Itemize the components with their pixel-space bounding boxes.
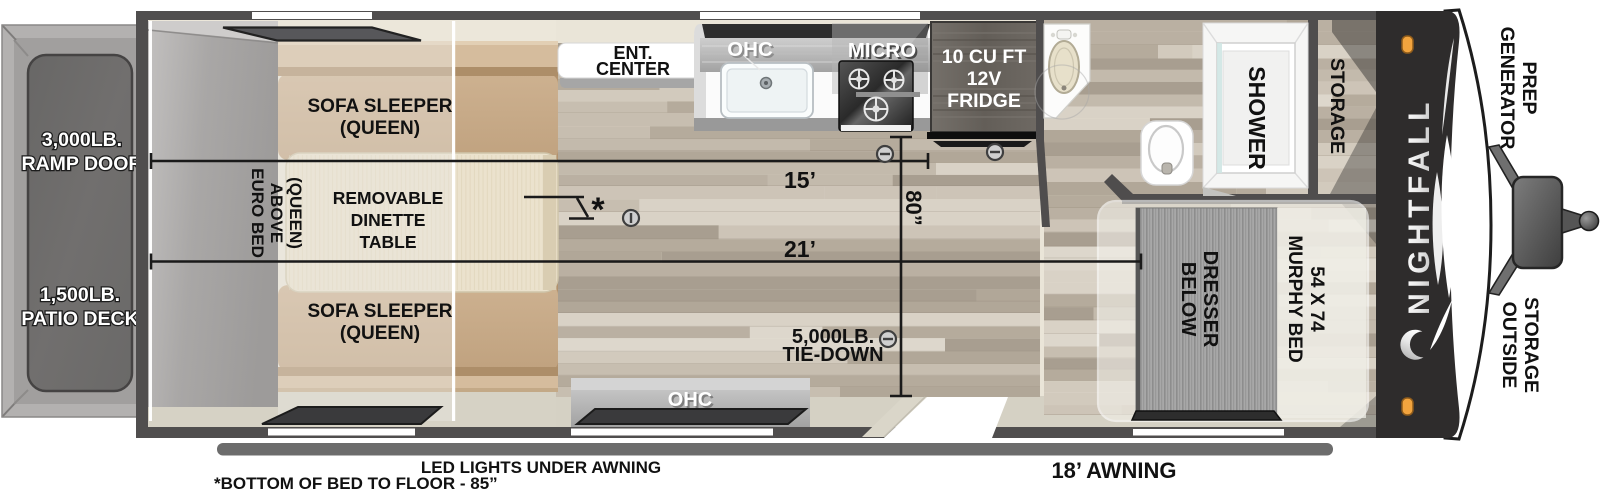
svg-text:RAMP DOOR: RAMP DOOR	[22, 153, 143, 175]
svg-text:21’: 21’	[784, 236, 816, 262]
svg-text:DINETTE: DINETTE	[351, 210, 426, 230]
svg-text:MURPHY BED: MURPHY BED	[1284, 235, 1305, 362]
svg-text:54 X 74: 54 X 74	[1306, 266, 1327, 332]
svg-text:NIGHTFALL: NIGHTFALL	[1403, 97, 1436, 315]
svg-text:MICRO: MICRO	[848, 39, 916, 62]
svg-text:TABLE: TABLE	[359, 232, 416, 252]
svg-text:TIE-DOWN: TIE-DOWN	[782, 344, 883, 366]
svg-text:OUTSIDE: OUTSIDE	[1498, 302, 1520, 389]
svg-text:1,500LB.: 1,500LB.	[40, 284, 120, 306]
svg-text:10 CU FT: 10 CU FT	[942, 46, 1027, 68]
svg-text:12V: 12V	[967, 68, 1002, 90]
svg-text:*BOTTOM OF BED TO FLOOR - 85”: *BOTTOM OF BED TO FLOOR - 85”	[214, 474, 498, 492]
svg-text:SOFA SLEEPER: SOFA SLEEPER	[308, 301, 453, 322]
svg-text:OHC: OHC	[727, 38, 773, 61]
svg-text:ABOVE: ABOVE	[267, 183, 286, 243]
svg-text:BELOW: BELOW	[1177, 262, 1199, 337]
svg-text:(QUEEN): (QUEEN)	[340, 323, 420, 344]
svg-text:CENTER: CENTER	[596, 59, 670, 79]
svg-text:*: *	[591, 191, 605, 229]
svg-text:PATIO DECK: PATIO DECK	[21, 308, 138, 330]
svg-text:EURO BED: EURO BED	[248, 168, 267, 258]
svg-text:PREP: PREP	[1518, 61, 1540, 114]
svg-text:3,000LB.: 3,000LB.	[42, 129, 122, 151]
svg-text:STORAGE: STORAGE	[1520, 297, 1542, 393]
svg-text:80”: 80”	[901, 190, 926, 225]
svg-text:SOFA SLEEPER: SOFA SLEEPER	[308, 96, 453, 117]
svg-text:FRIDGE: FRIDGE	[947, 90, 1021, 112]
svg-text:DRESSER: DRESSER	[1199, 251, 1221, 348]
svg-text:SHOWER: SHOWER	[1244, 66, 1270, 170]
svg-text:18’ AWNING: 18’ AWNING	[1051, 458, 1176, 483]
svg-text:15’: 15’	[784, 167, 816, 193]
svg-text:OHC: OHC	[668, 389, 712, 411]
svg-text:REMOVABLE: REMOVABLE	[333, 188, 444, 208]
svg-text:(QUEEN): (QUEEN)	[340, 118, 420, 139]
svg-text:GENERATOR: GENERATOR	[1496, 27, 1518, 150]
svg-text:STORAGE: STORAGE	[1326, 58, 1348, 154]
svg-text:(QUEEN): (QUEEN)	[286, 177, 305, 249]
